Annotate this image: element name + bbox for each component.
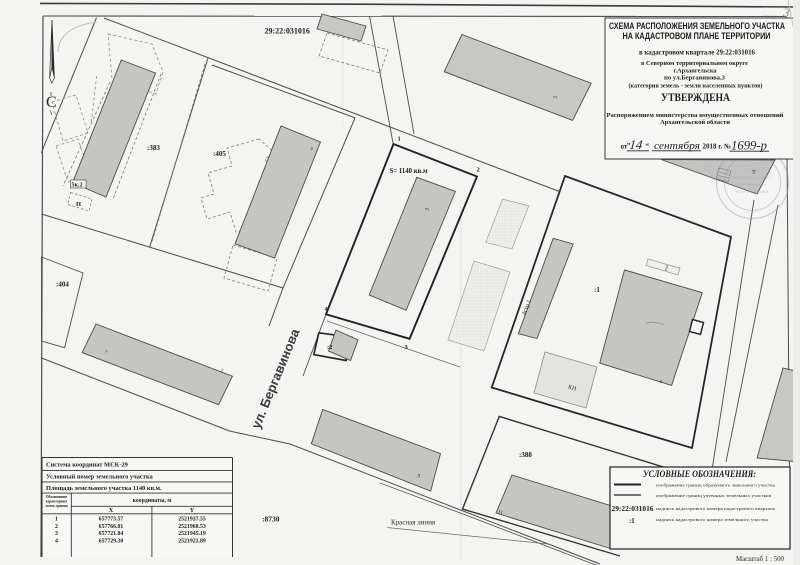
svg-text:“: “ xyxy=(646,142,650,150)
svg-text:Архангельской области: Архангельской области xyxy=(660,119,730,126)
svg-text:29:22:031016: 29:22:031016 xyxy=(612,506,655,513)
svg-text::1: :1 xyxy=(594,286,600,294)
svg-text::383: :383 xyxy=(147,144,160,152)
svg-text:характерных: характерных xyxy=(45,500,67,504)
svg-text::1: :1 xyxy=(629,518,635,525)
svg-text:надпись кадастрового номера ка: надпись кадастрового номера кадастрового… xyxy=(656,506,775,511)
svg-text:2: 2 xyxy=(55,524,58,530)
svg-text:2521921.89: 2521921.89 xyxy=(178,538,206,544)
svg-text:2521937.55: 2521937.55 xyxy=(178,517,206,523)
svg-text:УТВЕРЖДЕНА: УТВЕРЖДЕНА xyxy=(661,92,731,104)
svg-text:Система координат МСК-29: Система координат МСК-29 xyxy=(46,462,128,469)
svg-text:Y: Y xyxy=(190,507,195,514)
svg-text:3: 3 xyxy=(55,531,58,537)
svg-text:4: 4 xyxy=(55,538,58,544)
svg-text:1: 1 xyxy=(398,136,401,143)
svg-text:Н: Н xyxy=(76,201,81,208)
svg-text:в кадастровом квартале 29:22:0: в кадастровом квартале 29:22:031016 xyxy=(639,49,755,57)
svg-text::2: :2 xyxy=(327,344,332,351)
svg-text:657721.84: 657721.84 xyxy=(99,531,124,537)
svg-text:изображение границ образуемого: изображение границ образуемого земельног… xyxy=(656,483,775,488)
svg-text:657729.30: 657729.30 xyxy=(99,538,124,544)
svg-text:657766.01: 657766.01 xyxy=(99,524,124,530)
svg-text:2521960.53: 2521960.53 xyxy=(178,524,206,530)
svg-text:X: X xyxy=(109,507,114,514)
svg-text:информационного: информационного xyxy=(733,175,771,180)
svg-text:Площадь земельного участка 1: Площадь земельного участка 1140 кв.м. xyxy=(46,485,162,492)
svg-text:по ул.Бергавинова,3: по ул.Бергавинова,3 xyxy=(664,75,726,82)
svg-text:29:22:031016: 29:22:031016 xyxy=(265,27,310,36)
svg-text:надпись кадастрового номера зе: надпись кадастрового номера земельного у… xyxy=(656,517,768,522)
svg-text:657773.57: 657773.57 xyxy=(99,517,124,523)
svg-text:обеспечения и: обеспечения и xyxy=(737,182,767,187)
svg-text:Распоряжением министерства иму: Распоряжением министерства имущественных… xyxy=(607,112,784,119)
svg-text:С: С xyxy=(46,94,57,111)
svg-text::388: :388 xyxy=(519,451,532,459)
svg-text:(категория земель - земли насе: (категория земель - земли населенных пун… xyxy=(629,82,763,89)
svg-text:2: 2 xyxy=(477,167,480,174)
svg-text::8730: :8730 xyxy=(262,515,280,524)
svg-text:1699-р: 1699-р xyxy=(731,138,767,153)
svg-text:14: 14 xyxy=(629,137,644,152)
svg-text:Обозначение: Обозначение xyxy=(46,495,68,499)
svg-text::405: :405 xyxy=(213,150,226,158)
svg-text:НА КАДАСТРОВОМ ПЛАНЕ ТЕРРИТОРИ: НА КАДАСТРОВОМ ПЛАНЕ ТЕРРИТОРИИ xyxy=(623,31,771,41)
svg-text::404: :404 xyxy=(56,281,69,289)
svg-text:в Северном территориальном ок: в Северном территориальном округе xyxy=(641,60,748,67)
svg-text:Красная линия: Красная линия xyxy=(391,519,436,527)
svg-text:S= 1140 кв.м: S= 1140 кв.м xyxy=(390,168,429,175)
svg-text:изображение границ учтенных зе: изображение границ учтенных земельных уч… xyxy=(656,493,772,498)
svg-text:2018 г. №: 2018 г. № xyxy=(703,143,732,151)
svg-text:точек границ: точек границ xyxy=(45,504,68,508)
svg-text:координаты, м: координаты, м xyxy=(133,498,172,504)
svg-text:сентября: сентября xyxy=(654,140,700,152)
svg-text:СХЕМА РАСПОЛОЖЕНИЯ ЗЕМЕЛЬНОГО: СХЕМА РАСПОЛОЖЕНИЯ ЗЕМЕЛЬНОГО УЧАСТКА xyxy=(609,21,786,31)
svg-text:1: 1 xyxy=(55,517,58,523)
svg-text:2521945.19: 2521945.19 xyxy=(178,531,206,537)
svg-text:5к.2: 5к.2 xyxy=(72,183,83,189)
svg-text:г.Архангельска: г.Архангельска xyxy=(674,67,718,74)
svg-text:УСЛОВНЫЕ ОБОЗНАЧЕНИЯ:: УСЛОВНЫЕ ОБОЗНАЧЕНИЯ: xyxy=(643,469,756,479)
svg-text:ведения архива: ведения архива xyxy=(736,189,769,194)
svg-text:Условный номер земельного учас: Условный номер земельного участка xyxy=(46,474,153,481)
svg-text:Масштаб 1 : 500: Масштаб 1 : 500 xyxy=(736,554,784,563)
